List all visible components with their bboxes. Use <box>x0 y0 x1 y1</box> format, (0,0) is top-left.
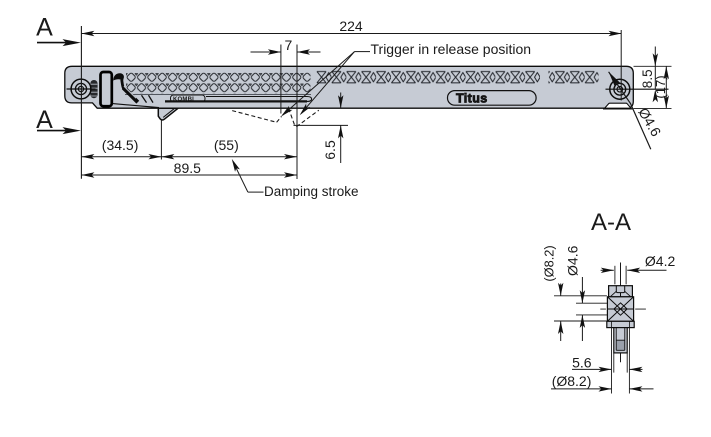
svg-text:6.5: 6.5 <box>322 140 338 160</box>
svg-text:5.6: 5.6 <box>572 354 592 370</box>
svg-text:Trigger in release position: Trigger in release position <box>371 41 532 57</box>
svg-text:Ø4.6: Ø4.6 <box>635 105 664 139</box>
svg-text:A-A: A-A <box>591 209 631 236</box>
svg-text:(34.5): (34.5) <box>102 137 139 153</box>
svg-text:Ø4.2: Ø4.2 <box>645 253 676 269</box>
svg-text:7: 7 <box>285 37 293 53</box>
svg-text:Ø4.6: Ø4.6 <box>565 245 581 276</box>
svg-text:(17): (17) <box>653 75 668 98</box>
svg-text:224: 224 <box>339 18 363 34</box>
svg-text:(55): (55) <box>214 137 239 153</box>
svg-text:89.5: 89.5 <box>174 160 201 176</box>
svg-text:Titus: Titus <box>456 92 488 106</box>
svg-text:Damping stroke: Damping stroke <box>264 184 359 199</box>
svg-text:(Ø8.2): (Ø8.2) <box>542 245 557 281</box>
svg-text:A: A <box>36 14 53 42</box>
svg-text:(Ø8.2): (Ø8.2) <box>552 373 592 389</box>
